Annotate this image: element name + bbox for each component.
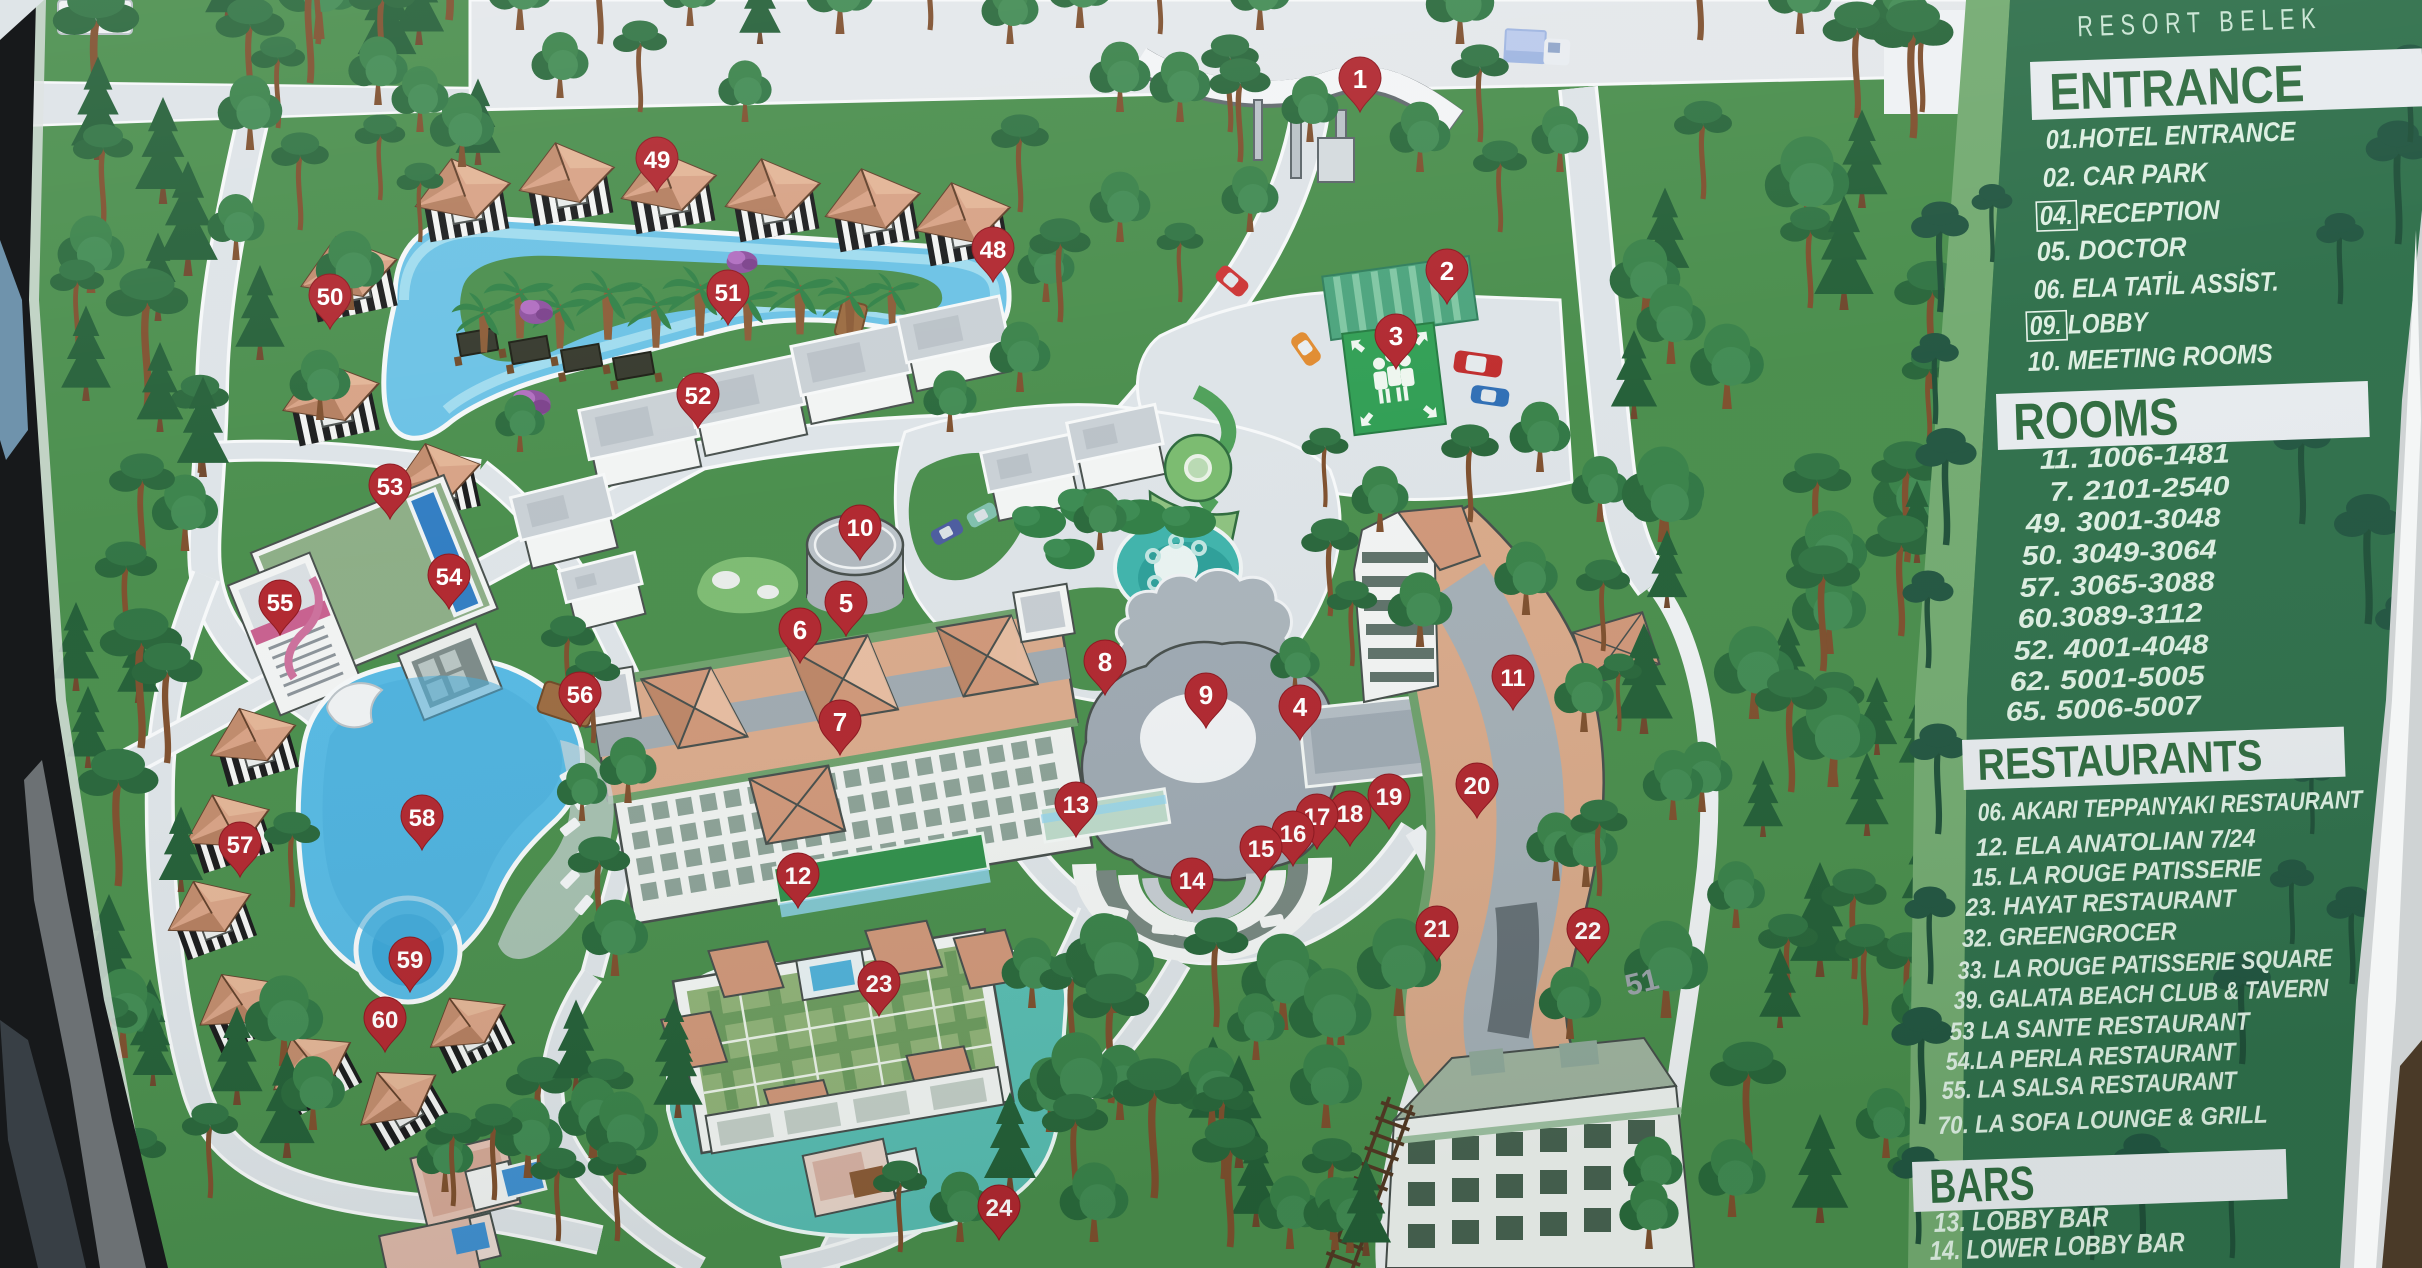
svg-text:53: 53 [377,474,404,501]
svg-text:2: 2 [1440,256,1454,286]
svg-text:14: 14 [1179,868,1206,895]
svg-text:3: 3 [1389,321,1403,351]
svg-text:50: 50 [317,284,344,311]
svg-text:20: 20 [1464,773,1491,800]
svg-text:19: 19 [1376,784,1403,811]
svg-text:52: 52 [685,383,712,410]
svg-text:16: 16 [1280,821,1307,848]
svg-text:7: 7 [833,707,847,737]
svg-text:6: 6 [793,615,807,645]
svg-text:8: 8 [1098,647,1112,677]
svg-text:60: 60 [372,1007,399,1034]
svg-text:10: 10 [847,515,874,542]
svg-text:04. RECEPTION: 04. RECEPTION [2039,195,2220,231]
svg-text:13: 13 [1063,792,1090,819]
svg-text:49: 49 [644,147,671,174]
svg-text:48: 48 [980,237,1007,264]
svg-text:55: 55 [267,590,294,617]
svg-text:22: 22 [1575,918,1602,945]
svg-text:11: 11 [1500,665,1525,692]
svg-text:18: 18 [1337,801,1364,828]
svg-text:RESTAURANTS: RESTAURANTS [1977,731,2264,790]
svg-text:02. CAR PARK: 02. CAR PARK [2042,157,2210,193]
svg-text:23: 23 [866,971,893,998]
svg-text:9: 9 [1199,680,1213,710]
svg-text:58: 58 [409,805,436,832]
svg-text:51: 51 [715,280,742,307]
svg-text:59: 59 [397,947,424,974]
svg-text:4: 4 [1293,692,1308,722]
svg-text:05. DOCTOR: 05. DOCTOR [2036,232,2187,267]
svg-text:5: 5 [839,588,853,618]
svg-text:1: 1 [1353,64,1367,94]
svg-text:ENTRANCE: ENTRANCE [2048,55,2305,122]
svg-text:12: 12 [785,863,812,890]
svg-text:21: 21 [1424,916,1451,943]
svg-text:15: 15 [1248,836,1275,863]
svg-text:7. 2101-2540: 7. 2101-2540 [2049,471,2230,507]
svg-text:56: 56 [567,682,594,709]
svg-text:24: 24 [986,1195,1013,1222]
svg-text:54: 54 [436,564,463,591]
svg-text:57: 57 [227,832,254,859]
